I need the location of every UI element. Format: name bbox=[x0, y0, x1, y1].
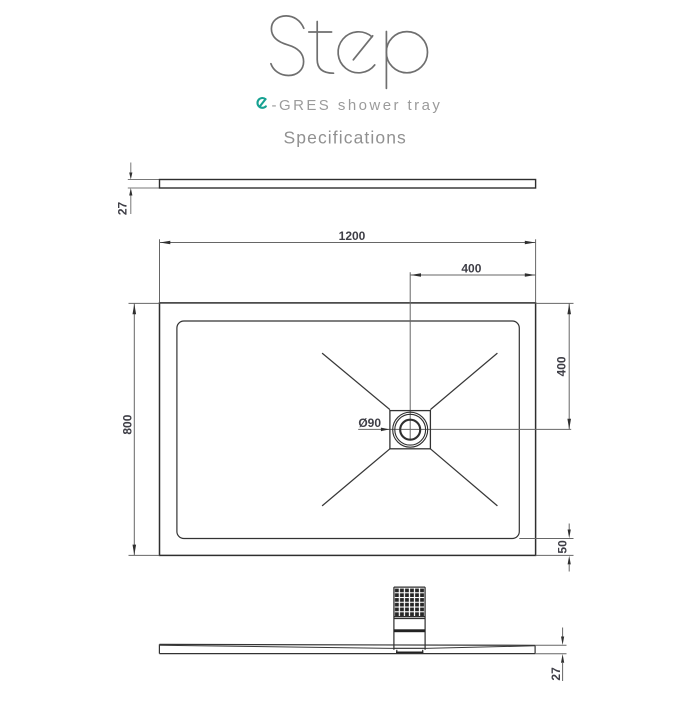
svg-text:27: 27 bbox=[549, 667, 563, 681]
svg-text:400: 400 bbox=[554, 356, 568, 376]
svg-text:50: 50 bbox=[556, 540, 570, 554]
svg-text:Ø90: Ø90 bbox=[358, 416, 381, 430]
svg-text:1200: 1200 bbox=[339, 229, 366, 243]
svg-text:800: 800 bbox=[120, 414, 134, 434]
svg-text:Specifications: Specifications bbox=[284, 128, 407, 148]
svg-text:27: 27 bbox=[116, 202, 130, 216]
svg-text:400: 400 bbox=[461, 261, 481, 275]
svg-text:-GRES shower tray: -GRES shower tray bbox=[272, 97, 443, 114]
